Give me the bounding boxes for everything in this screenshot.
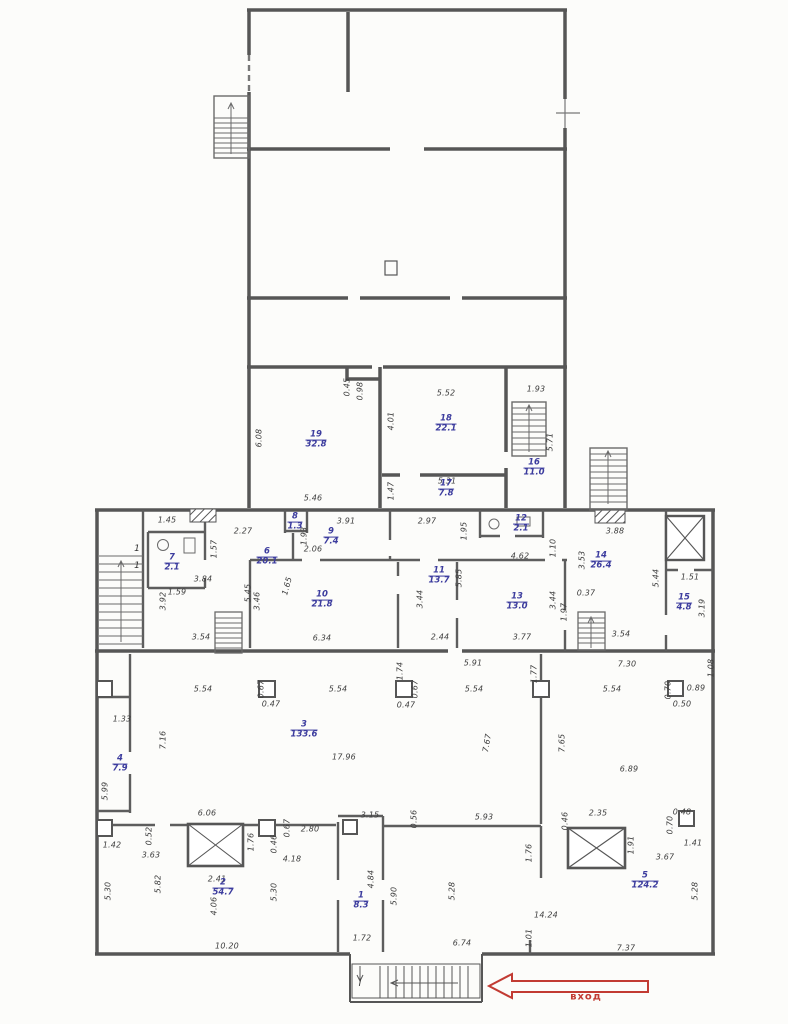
staircase-top-left — [214, 96, 249, 158]
entrance-label: вход — [570, 992, 602, 1003]
walls-main — [95, 10, 715, 954]
columns — [97, 681, 694, 836]
shaft-right — [568, 828, 625, 868]
entrance-arrow-icon — [489, 974, 648, 998]
hatched-wall-section — [190, 509, 216, 522]
floor-plan-drawing — [0, 0, 788, 1024]
wc-fixtures-room12 — [489, 517, 530, 529]
staircase-right-outside — [590, 448, 627, 510]
staircase-room16 — [512, 402, 546, 456]
staircase-band-left — [99, 556, 143, 644]
floor-plan: 0.450.986.085.465.524.011.935.711.475.31… — [0, 0, 788, 1024]
wc-fixtures-room7 — [158, 538, 196, 553]
staircase-band-right — [578, 612, 605, 650]
hatched-wall-section — [595, 510, 625, 523]
window-marks — [556, 99, 580, 128]
walls-partitions — [97, 510, 713, 954]
staircase-band-center — [215, 612, 242, 653]
shaft-left — [188, 824, 243, 866]
elevator-shaft — [666, 516, 704, 560]
entrance-vestibule — [350, 954, 482, 1002]
column-symbol — [385, 261, 397, 275]
